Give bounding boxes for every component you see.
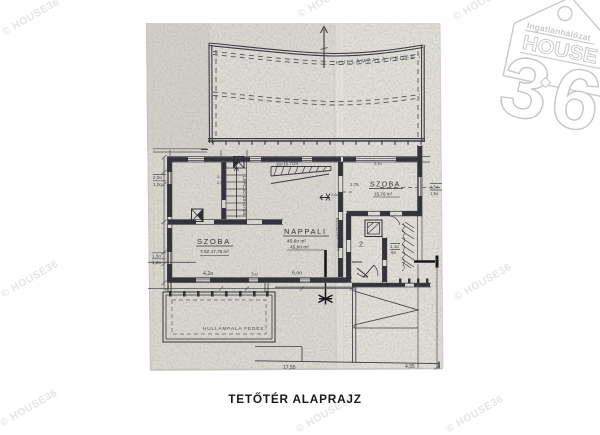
- svg-text:36: 36: [492, 38, 600, 153]
